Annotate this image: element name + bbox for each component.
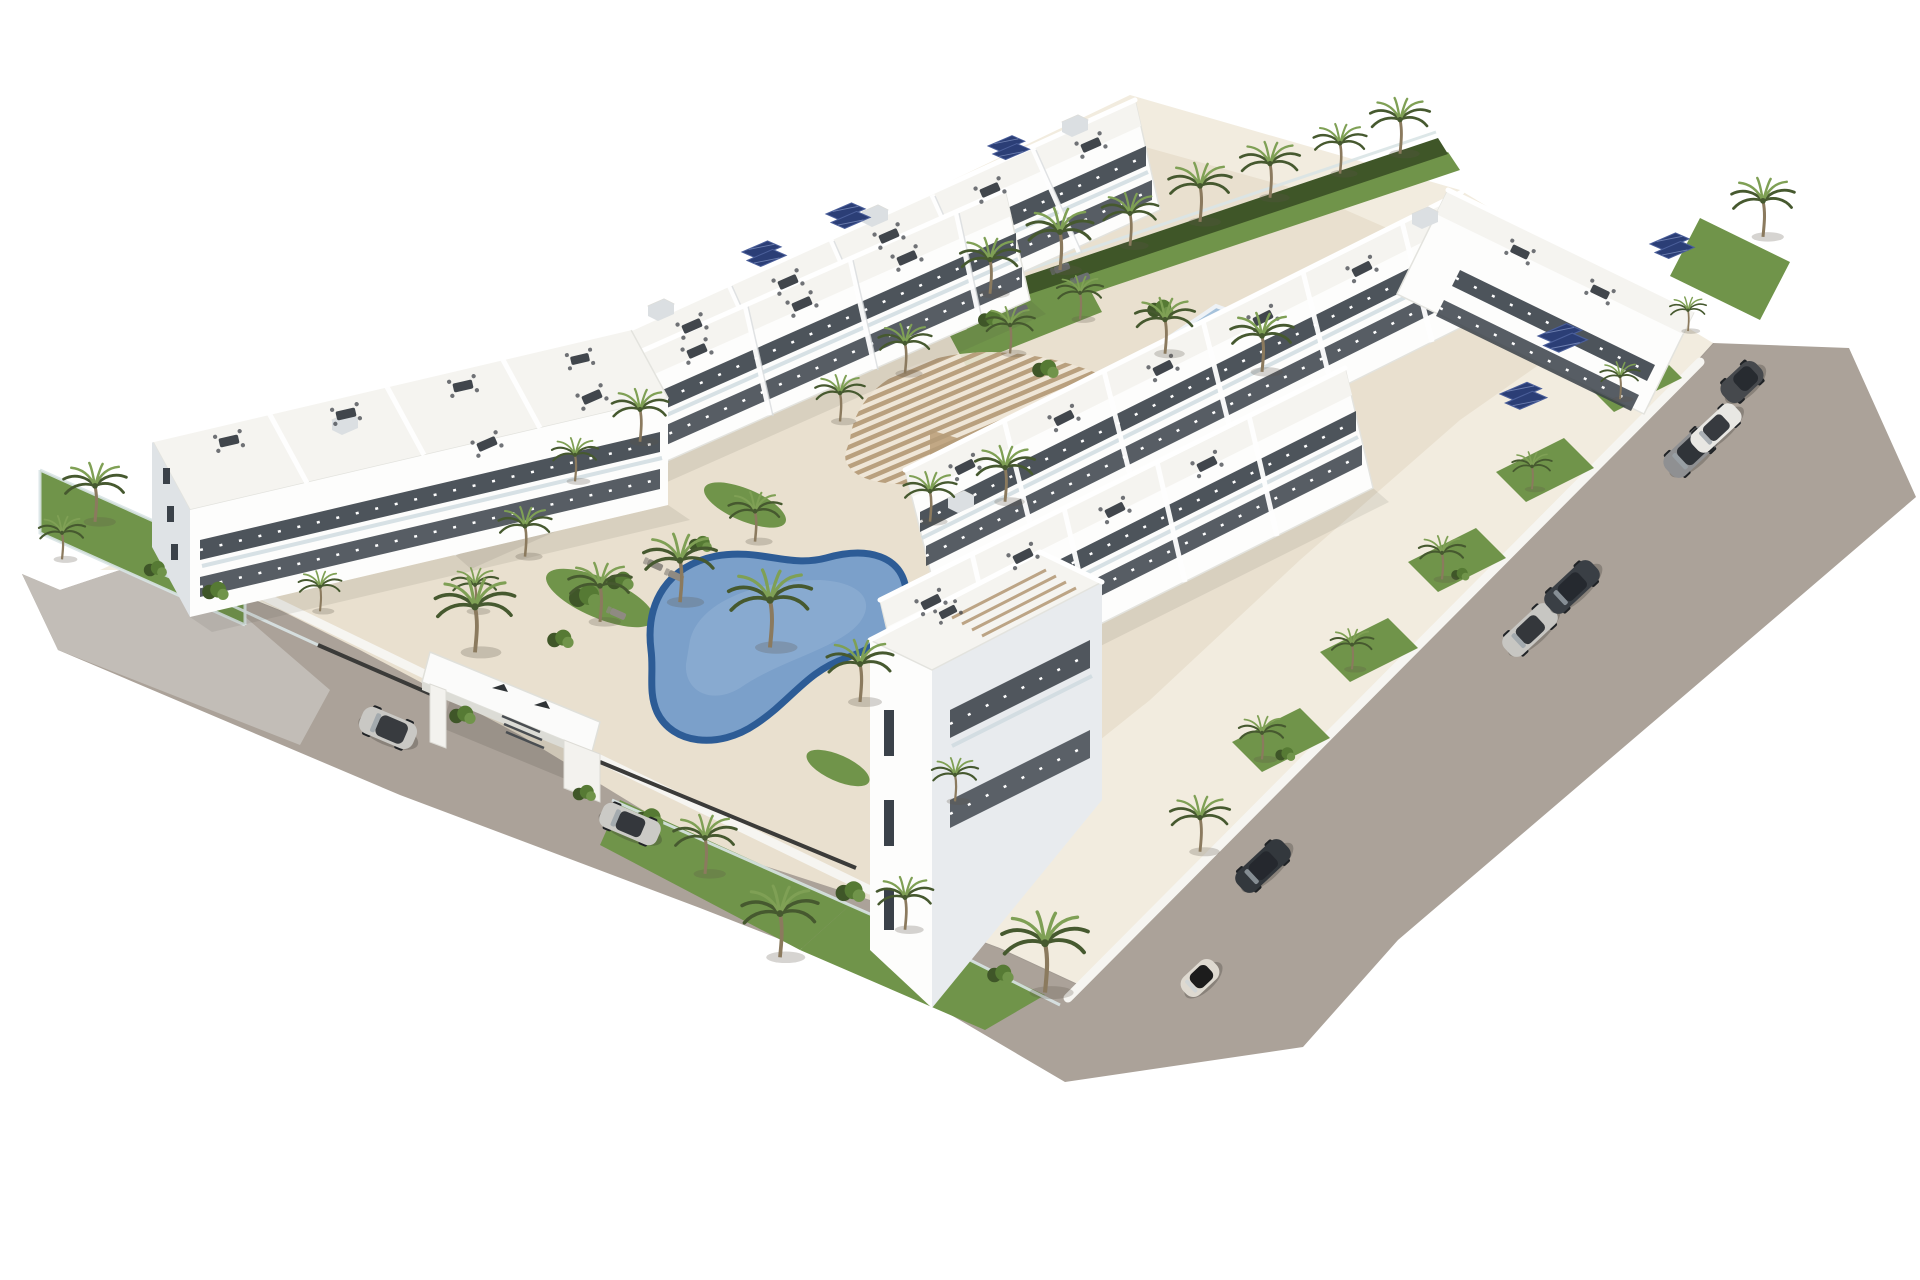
render-canvas: [0, 0, 1920, 1280]
endwall-window: [171, 544, 178, 560]
endwall-window: [167, 506, 174, 522]
aerial-render: [0, 0, 1920, 1280]
tower-left-face: [870, 640, 932, 1008]
tower-window: [884, 800, 894, 846]
endwall-window: [163, 468, 170, 484]
gate-pillar-left: [430, 684, 446, 748]
tower-window: [884, 710, 894, 756]
palm-tree: [1732, 178, 1795, 242]
